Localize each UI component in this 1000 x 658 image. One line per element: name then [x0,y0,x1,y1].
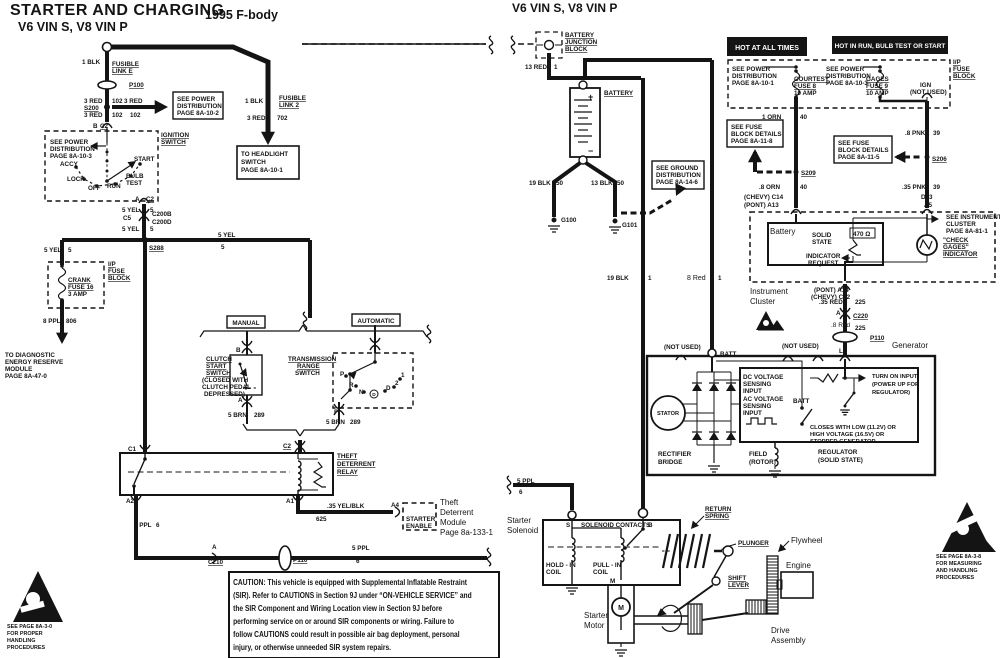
splice-dot [878,65,882,69]
break-symbol [489,36,492,54]
label-13-blk: 13 BLK [591,180,613,187]
label-d: D [386,385,391,392]
diode-symbol [709,383,719,391]
terminal-ring [579,81,587,89]
ground-symbol [548,226,560,232]
label-block-details: BLOCK DETAILS [838,147,889,154]
arrow-head [894,151,905,163]
splice-dot [878,69,882,73]
label-p110: P110 [293,557,308,564]
label-1-blk: 1 BLK [245,98,264,105]
arrow-head [56,333,68,344]
splice-dot [60,264,64,268]
label-bulb: BULB [126,173,144,180]
label-19-blk: 19 BLK [607,275,629,282]
sir-note-line: PROCEDURES [7,645,52,652]
label-page-8a-10-2: PAGE 8A-10-2 [177,110,219,117]
wiring-diagram-page: STARTER AND CHARGING V6 VIN S, V8 VIN P … [0,0,1000,658]
wire-segment [671,534,678,568]
splice-dot [142,237,148,243]
wire-segment [350,362,375,374]
label-35-pnk: .35 PNK [902,184,926,191]
label-c220: C220 [853,313,869,320]
break-symbol [511,36,514,54]
label-5-yel: 5 YEL [122,207,140,214]
wire-segment [695,534,702,568]
wire-segment [243,424,300,436]
label-d13: D13 [921,194,933,201]
label-sensing: SENSING [743,381,771,388]
rotation-arrow [661,605,682,631]
diode-symbol [709,432,719,440]
sir-handling-note: SEE PAGE 8A-3-0 FOR PROPER HANDLING PROC… [7,624,52,652]
label-8-red: 8 Red [687,275,706,282]
label-link-e: LINK E [112,68,133,75]
label-clutch-pedal: CLUTCH PEDAL [202,384,251,391]
label-see-instrument: SEE INSTRUMENT [946,214,1000,221]
label-hot-at-all-times: HOT AT ALL TIMES [735,45,799,52]
label-g101: G101 [622,222,638,229]
wire-segment [687,534,694,568]
label-3-red: 3 RED [247,115,266,122]
wiring-diagram-canvas: 1 BLKFUSIBLELINK EP1003 RED102S2003 RED1… [0,0,1000,658]
label-1: 1 [648,275,652,282]
splice-dot [794,65,798,69]
sir-measuring-note: SEE PAGE 8A-3-8 FOR MEASURING AND HANDLI… [936,554,982,582]
label-range: RANGE [297,363,320,370]
label-input: INPUT [743,388,762,395]
wire-segment [303,325,427,337]
splice-dot [794,170,799,175]
terminal-ring [545,41,554,50]
label-engine: Engine [786,561,811,570]
diode-symbol [726,432,736,440]
label-closes-with-low-11-2v-or: CLOSES WITH LOW (11.2V) OR [810,425,897,431]
label-block: BLOCK [108,275,131,282]
coil-winding [572,538,575,562]
wire-segment [627,529,643,546]
label-coil: COIL [593,569,608,576]
arrow-head [155,100,168,114]
label-page-8a-47-0: PAGE 8A-47-0 [5,373,47,380]
label-50: 50 [556,180,564,187]
label-link-2: LINK 2 [279,102,299,109]
diode-symbol [692,432,702,440]
label-8-ppl: 8 PPL [43,318,61,325]
label-solenoid: Solenoid [507,526,538,535]
label-energy-reserve: ENERGY RESERVE [5,359,63,366]
label-stopped-generator: STOPPED GENERATOR [810,439,877,445]
resistor-element [314,462,326,487]
label-5-yel: 5 YEL [122,226,140,233]
label-gages: GAGES" [943,244,969,251]
label-bridge: BRIDGE [658,459,683,466]
label-module: Module [440,518,467,527]
label-m: M [618,605,624,612]
label-solid: SOLID [812,232,832,239]
splice-dot [106,160,109,163]
label-8-orn: .8 ORN [759,184,780,191]
splice-dot [104,104,110,110]
label-switch: SWITCH [295,370,320,377]
ground-symbol [615,650,627,656]
label-10-amp: 10 AMP [794,90,817,97]
label-5-yel: 5 YEL [44,247,62,254]
label-indicator: INDICATOR [943,251,978,258]
label-manual: MANUAL [232,320,259,327]
label-: + [588,92,593,102]
label-switch: SWITCH [206,370,231,377]
wire-segment [802,409,812,423]
arrow-head [931,215,939,223]
label-fuse-16: FUSE 16 [68,284,94,291]
label-c2: C2 [283,443,292,450]
label-6: 6 [356,558,360,565]
label-switch: SWITCH [241,159,266,166]
sir-note-line: AND HANDLING [936,568,982,575]
label-470: 470 Ω [853,231,870,238]
label-regulator: REGULATOR [818,449,858,456]
label-6: 6 [156,522,160,529]
label-10-amp: 10 AMP [866,90,889,97]
wire-segment [621,200,672,213]
label-hold-in: HOLD - IN [546,562,576,569]
label-s288: S288 [149,245,164,252]
label-automatic: AUTOMATIC [357,318,395,325]
label-accy: ACCY [60,161,79,168]
label-see-fuse: SEE FUSE [731,124,762,131]
break-symbol [487,548,490,566]
label-a: A [836,310,841,317]
label-8-red: .8 Red [831,322,851,329]
caution-line: the SIR Component and Wiring Location vi… [233,602,500,615]
label-sensing: SENSING [743,403,771,410]
label-see-fuse: SEE FUSE [838,140,869,147]
label-rectifier: RECTIFIER [658,451,692,458]
splice-dot [552,218,557,223]
label-5-brn: 5 BRN [326,419,345,426]
label-50: 50 [617,180,625,187]
label-702: 702 [277,115,288,122]
label-state: STATE [812,239,832,246]
caution-line: CAUTION: This vehicle is equipped with S… [233,576,500,589]
label-5-brn: 5 BRN [228,412,247,419]
label-s: S [566,522,570,529]
label-1: 1 [554,64,558,71]
label-not-used: (NOT USED) [664,344,701,351]
label-batt: BATT [793,398,809,405]
label-run: RUN [107,183,121,190]
wire-segment [880,97,927,101]
splice-dot [348,372,352,376]
label-8-pnk: .8 PNK [905,130,926,137]
terminal-ring [723,546,733,556]
label-fusible: FUSIBLE [279,95,306,102]
label-distribution: DISTRIBUTION [732,73,777,80]
label-see-power: SEE POWER [50,139,89,146]
splice-dot [373,360,377,364]
label-clutch: CLUTCH [206,356,232,363]
label-5-ppl: 5 PPL [517,478,535,485]
label-a1: A1 [286,498,295,505]
label-c200b: C200B [152,211,172,218]
square-wave-icon [746,418,777,424]
wire-segment [136,495,487,558]
label-m: M [610,578,615,585]
label-lever: LEVER [728,582,749,589]
resistor-element [849,240,861,255]
label-see-power: SEE POWER [732,66,771,73]
terminal-ring [103,43,112,52]
label-regulator: REGULATOR) [872,390,910,396]
terminal-ring [708,349,716,357]
battery-box [570,88,600,157]
break-symbol [507,476,510,494]
label-to-headlight: TO HEADLIGHT [241,151,288,158]
label-g100: G100 [561,217,577,224]
label-289: 289 [350,419,361,426]
label-rotor: (ROTOR) [749,459,776,466]
label-to-diagnostic: TO DIAGNOSTIC [5,352,55,359]
label-5: 5 [150,226,154,233]
label-not-used: (NOT USED) [782,343,819,350]
label-generator: Generator [892,341,928,350]
label-b: B [93,123,98,130]
label-starter: STARTER [406,516,436,523]
wire-segment [845,393,854,405]
label-pont-a13: (PONT) A13 [744,202,779,209]
sir-note-line: HANDLING [7,638,52,645]
splice-dot [623,546,627,550]
label-ign: IGN [920,82,932,89]
label-see-power: SEE POWER [826,66,865,73]
label-d: D [372,392,376,398]
label-cluster: CLUSTER [946,221,976,228]
terminal-ring [639,509,648,518]
label-transmission: TRANSMISSION [288,356,337,363]
label-return: RETURN [705,506,732,513]
diode-symbol [692,383,702,391]
arrow-head [261,132,275,145]
sir-note-line: FOR PROPER [7,631,52,638]
label-module: MODULE [5,366,32,373]
label-a: A [212,544,217,551]
label-drive: Drive [771,626,790,635]
splice-dot [344,374,348,378]
label-off: OFF [88,185,101,192]
label-page-8a-14-6: PAGE 8A-14-6 [656,179,698,186]
label-s206: S206 [932,156,947,163]
label-pull-in: PULL - IN [593,562,622,569]
label-19-blk: 19 BLK [529,180,551,187]
label-indicator: INDICATOR [806,253,841,260]
coil-winding [621,538,624,562]
caution-line: injury, or otherwise unneeded SIR system… [233,641,500,654]
fuse-element [59,268,66,300]
label-i-p: I/P [953,59,961,66]
arrow-head [748,149,762,162]
splice-dot [354,384,358,388]
label-102: 102 [112,98,123,105]
label-r: R [349,382,354,389]
label-625: 625 [316,516,327,523]
resistor-element [818,374,838,382]
label-shift: SHIFT [728,575,746,582]
label-c1: C1 [128,446,137,453]
label-102: 102 [112,112,123,119]
transmission-range-switch-box [333,353,413,408]
label-theft: THEFT [337,453,357,460]
label-battery: BATTERY [565,32,595,39]
label-225: 225 [855,325,866,332]
label-page-8a-10-3: PAGE 8A-10-3 [826,80,868,87]
wire-segment [341,390,350,399]
label-starter: Starter [584,611,608,620]
splice-dot [239,363,242,366]
label-see-ground: SEE GROUND [656,165,699,172]
label-page-8a-11-5: PAGE 8A-11-5 [838,154,880,161]
label-s209: S209 [801,170,816,177]
label-page-8a-10-3: PAGE 8A-10-3 [50,153,92,160]
label-cluster: Cluster [750,297,776,306]
label-page-8a-133-1: Page 8a-133-1 [440,528,493,537]
splice-dot [844,405,847,408]
wire-segment [702,613,748,620]
ground-symbol [840,410,850,415]
label-c2: C2 [100,123,109,130]
label-distribution: DISTRIBUTION [656,172,701,179]
wire-segment [585,60,712,78]
hatch-lines [691,604,700,634]
label-dc-voltage: DC VOLTAGE [743,374,783,381]
label-40: 40 [800,114,808,121]
label-block: BLOCK [565,46,588,53]
hatch-lines [749,600,764,614]
label-distribution: DISTRIBUTION [50,146,95,153]
label-fuse: FUSE [108,268,125,275]
label-p110: P110 [870,335,885,342]
label-i-p: I/P [108,261,116,268]
label-c200d: C200D [152,219,172,226]
coil-winding [298,461,301,491]
label-806: 806 [66,318,77,325]
label-batt: BATT [720,351,736,358]
label-chevy-c14: (CHEVY) C14 [744,194,784,201]
label-page-8a-11-8: PAGE 8A-11-8 [731,138,773,145]
sir-note-line: PROCEDURES [936,575,982,582]
label-field: FIELD [749,451,768,458]
label-b: B [648,522,653,529]
label-f: F [334,409,338,416]
arrow-head [841,254,849,262]
label-flywheel: Flywheel [791,536,823,545]
wire-segment [586,163,615,217]
label-see-power: SEE POWER [177,96,216,103]
label-battery: Battery [770,227,795,236]
label-starter: Starter [507,516,531,525]
sir-caution-box: CAUTION: This vehicle is equipped with S… [228,571,500,658]
caution-line: (SIR). Refer to CAUTIONS in Section 9J u… [233,589,500,602]
caution-line: follow CAUTIONS could result in possible… [233,628,500,641]
hatch-lines [767,559,778,613]
label-junction: JUNCTION [565,39,598,46]
label-5-yel: 5 YEL [218,232,236,239]
label-2: 2 [395,380,399,387]
label-5-ppl: 5 PPL [134,522,152,529]
label-fuse-8: FUSE 8 [794,83,817,90]
label-1: 1 [401,372,405,379]
terminal-ring [579,156,587,164]
label-hot-in-run-bulb-test-or-star: HOT IN RUN, BULB TEST OR START [835,43,946,50]
diode-symbol [726,383,736,391]
label-5: 5 [221,244,225,251]
caution-line: performing service on or around SIR comp… [233,615,500,628]
label-a2: A2 [126,498,135,505]
ground-symbol [609,227,621,233]
label-solid-state: (SOLID STATE) [818,457,863,464]
label-start: START [134,156,155,163]
splice-dot [60,298,64,302]
label-102: 102 [130,112,141,119]
label-35-red: .35 RED [819,299,843,306]
label-page-8a-10-1: PAGE 8A-10-1 [732,80,774,87]
label-s200: S200 [84,105,99,112]
label-3-amp: 3 AMP [68,291,87,298]
label-stator: STATOR [657,411,679,417]
label-battery: BATTERY [604,90,634,97]
starter-solenoid-box [543,520,680,585]
label-page-8a-10-1: PAGE 8A-10-1 [241,167,283,174]
label-fuse: FUSE [953,66,970,73]
label-distribution: DISTRIBUTION [826,73,871,80]
splice-dot [843,376,847,380]
grommet [279,546,291,570]
label-plunger: PLUNGER [738,540,769,547]
label-spring: SPRING [705,513,729,520]
label-courtesy: COURTESY [794,76,830,83]
splice-dot [613,219,618,224]
label-ac-voltage: AC VOLTAGE [743,396,783,403]
label-289: 289 [254,412,265,419]
wire-segment [714,556,726,577]
label-block: BLOCK [953,73,976,80]
label-3-red: 3 RED [84,112,103,119]
label-3-red: 3 RED [124,98,143,105]
sir-note-line: SEE PAGE 8A-3-0 [7,624,52,631]
label-not-used: (NOT USED) [910,89,947,96]
grommet [833,332,857,342]
label-1: 1 [718,275,722,282]
label-l: L [839,348,843,355]
label-crank: CRANK [68,277,91,284]
label-enable: ENABLE [406,523,432,530]
ground-symbol [566,588,578,594]
splice-dot [106,151,109,154]
label-1-orn: 1 ORN [762,114,782,121]
label-39: 39 [933,130,941,137]
label-a: A [135,196,140,203]
label-b: B [236,347,241,354]
label-3-red: 3 RED [84,98,103,105]
label-solenoid-contacts: SOLENOID CONTACTS [581,522,650,529]
label-5-ppl: 5 PPL [352,545,370,552]
label-p100: P100 [129,82,144,89]
terminal-ring [568,511,576,519]
label-1-blk: 1 BLK [82,59,101,66]
label-power-up-for: (POWER UP FOR [872,382,920,388]
splice-dot [925,155,930,160]
label-225: 225 [855,299,866,306]
